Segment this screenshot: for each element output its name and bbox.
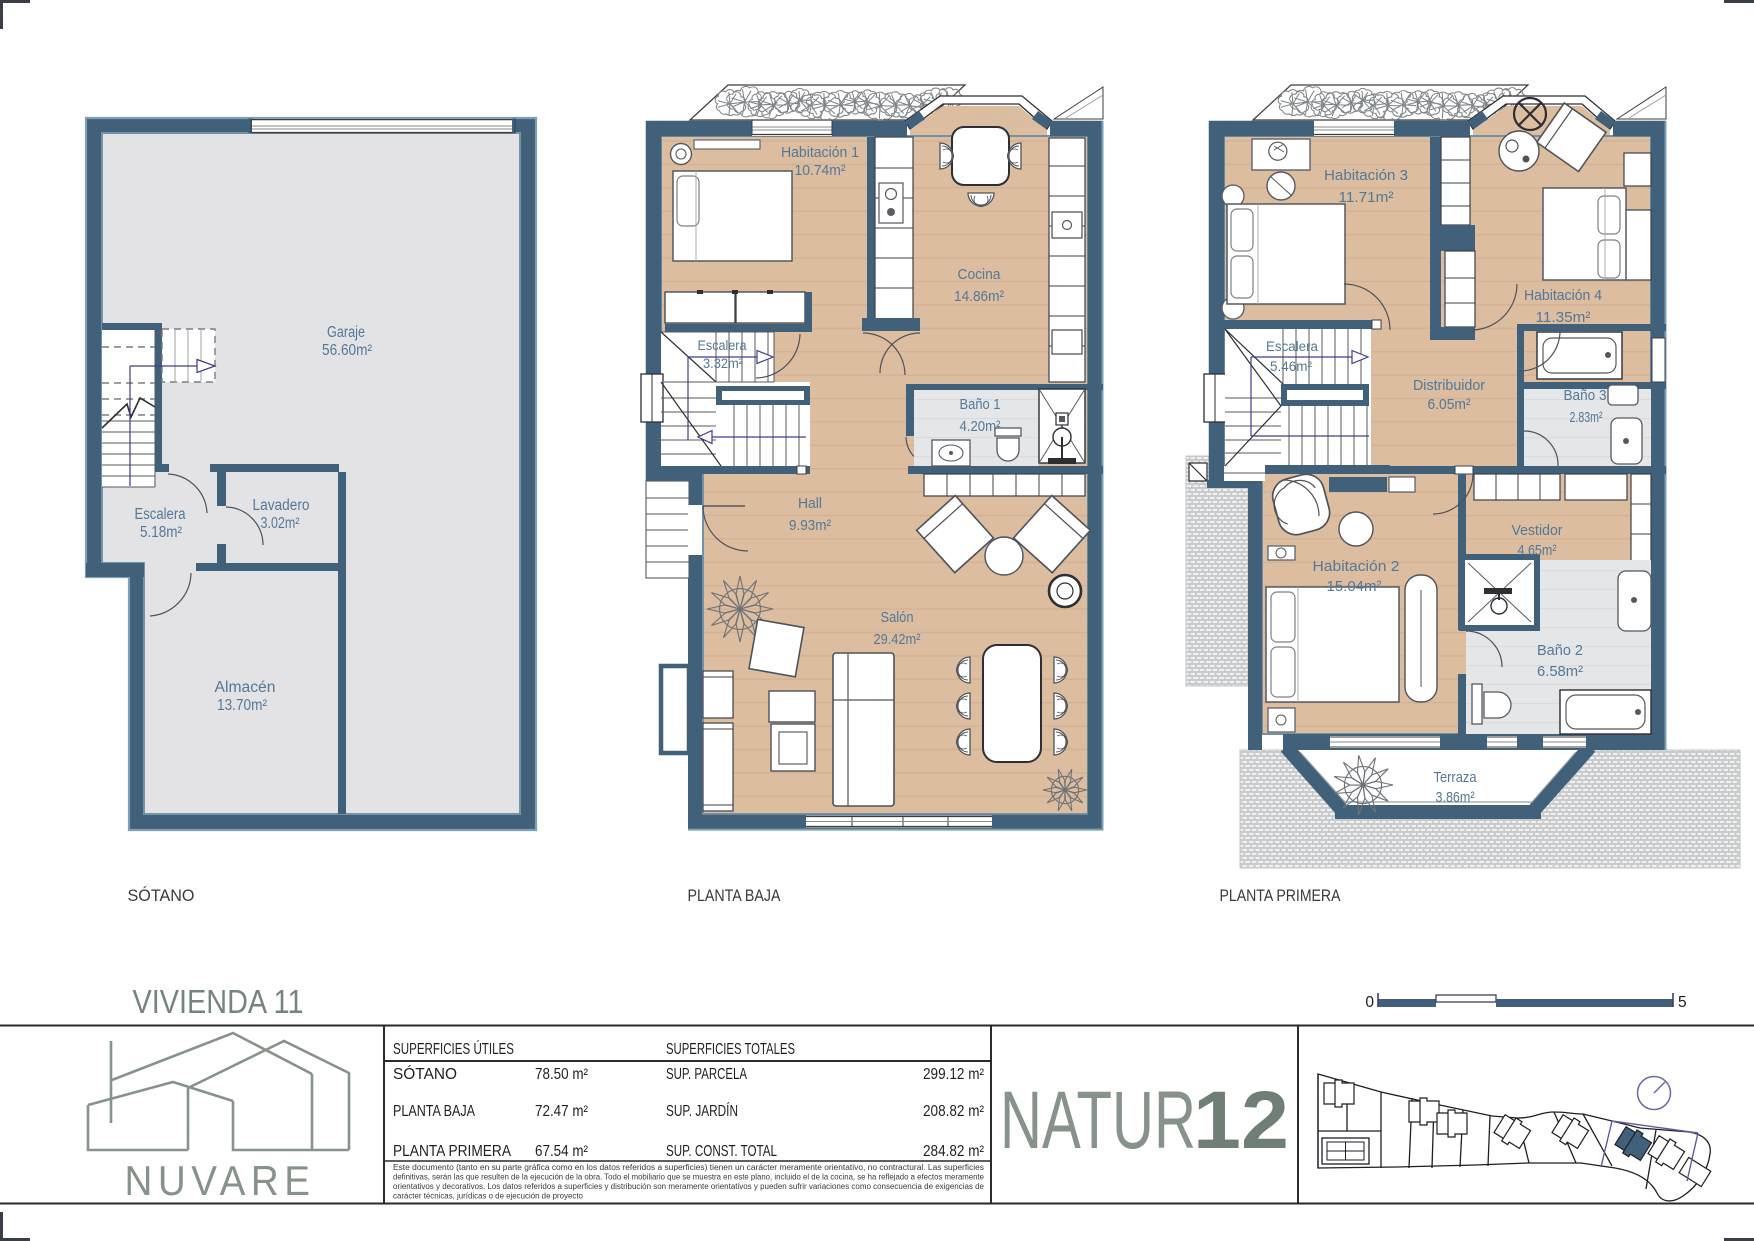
svg-text:284.82 m²: 284.82 m² <box>923 1143 984 1160</box>
svg-text:3.02m²: 3.02m² <box>261 515 300 532</box>
svg-text:NUVARE: NUVARE <box>125 1157 316 1204</box>
svg-text:15.04m²: 15.04m² <box>1327 578 1382 595</box>
svg-text:6.05m²: 6.05m² <box>1428 396 1471 413</box>
svg-text:Lavadero: Lavadero <box>253 497 310 514</box>
svg-text:NATUR: NATUR <box>1000 1075 1196 1166</box>
svg-text:Escalera: Escalera <box>698 338 747 353</box>
svg-text:definitivas, serán las que res: definitivas, serán las que resulten de l… <box>393 1173 985 1182</box>
svg-text:4.65m²: 4.65m² <box>1518 542 1557 559</box>
svg-text:0: 0 <box>1365 994 1374 1011</box>
svg-text:6.58m²: 6.58m² <box>1537 663 1583 680</box>
svg-text:56.60m²: 56.60m² <box>322 342 372 359</box>
svg-text:SUP. CONST. TOTAL: SUP. CONST. TOTAL <box>666 1143 777 1160</box>
svg-text:SUPERFICIES ÚTILES: SUPERFICIES ÚTILES <box>393 1041 514 1058</box>
svg-text:11.71m²: 11.71m² <box>1339 189 1394 206</box>
svg-text:13.70m²: 13.70m² <box>217 697 267 714</box>
svg-text:Distribuidor: Distribuidor <box>1413 377 1485 394</box>
svg-text:SUPERFICIES TOTALES: SUPERFICIES TOTALES <box>666 1041 795 1058</box>
svg-text:9.93m²: 9.93m² <box>789 517 831 534</box>
svg-text:Habitación 3: Habitación 3 <box>1324 167 1408 184</box>
svg-text:12: 12 <box>1193 1075 1289 1166</box>
svg-text:orientativos y decorativos. Lo: orientativos y decorativos. Los datos re… <box>393 1182 985 1191</box>
svg-text:Baño 2: Baño 2 <box>1537 642 1583 659</box>
svg-text:Salón: Salón <box>881 609 914 626</box>
svg-text:Vestidor: Vestidor <box>1512 522 1563 539</box>
svg-text:10.74m²: 10.74m² <box>795 162 846 179</box>
svg-text:5.46m²: 5.46m² <box>1270 359 1312 374</box>
svg-text:Habitación 2: Habitación 2 <box>1313 558 1400 575</box>
svg-text:5: 5 <box>1678 994 1687 1011</box>
svg-text:SÓTANO: SÓTANO <box>393 1066 457 1083</box>
svg-text:PLANTA BAJA: PLANTA BAJA <box>688 886 782 905</box>
svg-text:5.18m²: 5.18m² <box>140 524 182 541</box>
svg-text:208.82 m²: 208.82 m² <box>923 1103 984 1120</box>
svg-text:11.35m²: 11.35m² <box>1536 309 1591 326</box>
svg-text:Este documento (tanto en su pa: Este documento (tanto en su parte gráfic… <box>393 1163 984 1172</box>
svg-text:Hall: Hall <box>798 495 822 512</box>
svg-text:VIVIENDA 11: VIVIENDA 11 <box>133 983 304 1020</box>
svg-text:PLANTA PRIMERA: PLANTA PRIMERA <box>1220 886 1342 905</box>
svg-text:14.86m²: 14.86m² <box>954 288 1004 305</box>
svg-text:SÓTANO: SÓTANO <box>128 886 195 905</box>
svg-text:PLANTA PRIMERA: PLANTA PRIMERA <box>393 1143 512 1160</box>
svg-text:29.42m²: 29.42m² <box>874 631 921 648</box>
svg-text:78.50 m²: 78.50 m² <box>535 1066 588 1083</box>
svg-text:Baño 3: Baño 3 <box>1564 387 1607 404</box>
svg-text:Baño 1: Baño 1 <box>960 396 1001 413</box>
svg-text:Escalera: Escalera <box>135 506 186 523</box>
svg-text:PLANTA BAJA: PLANTA BAJA <box>393 1103 476 1120</box>
svg-text:72.47 m²: 72.47 m² <box>535 1103 588 1120</box>
svg-text:carácter técnicas, jurídicas o: carácter técnicas, jurídicas o de ejecuc… <box>393 1192 584 1201</box>
svg-text:Terraza: Terraza <box>1434 769 1478 786</box>
svg-text:Habitación 4: Habitación 4 <box>1524 287 1602 304</box>
svg-text:Habitación 1: Habitación 1 <box>781 144 859 161</box>
svg-text:299.12 m²: 299.12 m² <box>923 1066 984 1083</box>
svg-text:Cocina: Cocina <box>958 266 1002 283</box>
svg-text:3.32m²: 3.32m² <box>703 356 743 371</box>
svg-text:Almacén: Almacén <box>215 679 276 696</box>
svg-text:4.20m²: 4.20m² <box>960 418 1001 435</box>
svg-text:Escalera: Escalera <box>1266 339 1318 354</box>
svg-text:3.86m²: 3.86m² <box>1436 789 1475 806</box>
svg-text:2.83m²: 2.83m² <box>1570 409 1603 426</box>
svg-text:SUP. PARCELA: SUP. PARCELA <box>666 1066 747 1083</box>
svg-text:67.54 m²: 67.54 m² <box>535 1143 588 1160</box>
svg-text:SUP. JARDÍN: SUP. JARDÍN <box>666 1103 738 1120</box>
svg-text:Garaje: Garaje <box>327 324 365 341</box>
